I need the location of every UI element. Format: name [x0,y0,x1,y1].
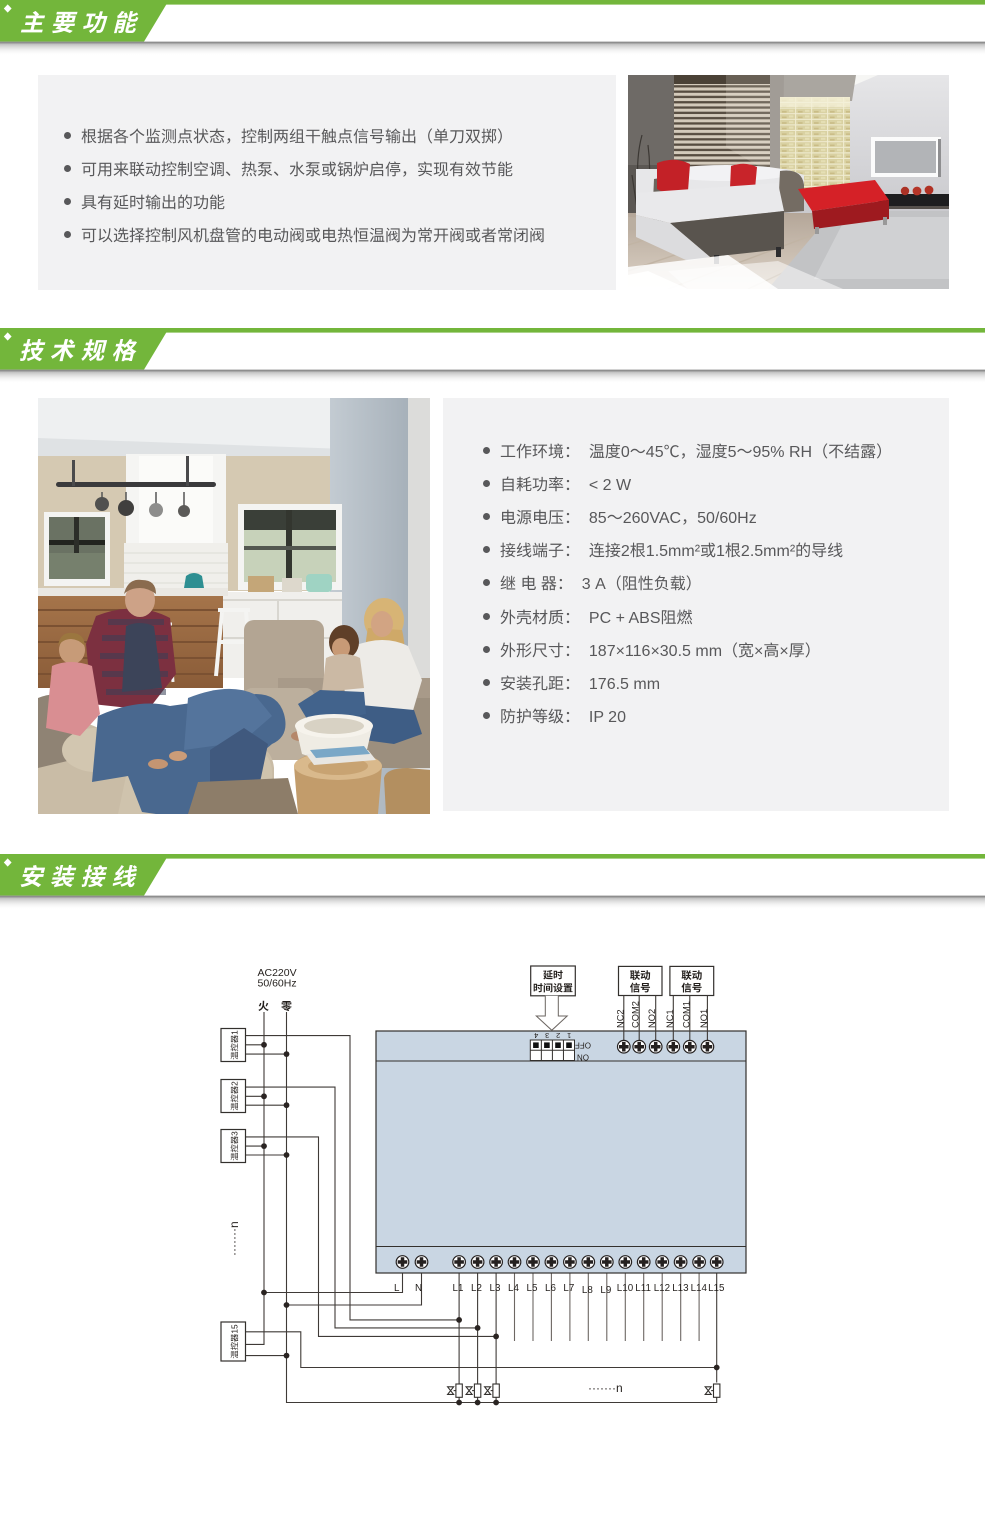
svg-text:L10: L10 [617,1283,634,1294]
svg-text:·······n: ·······n [227,1221,241,1256]
svg-text:L5: L5 [527,1283,538,1294]
svg-text:温控器3: 温控器3 [230,1131,240,1161]
svg-text:L2: L2 [471,1283,482,1294]
svg-text:·······n: ·······n [588,1381,623,1395]
svg-text:COM2: COM2 [631,1001,641,1028]
svg-text:3: 3 [545,1031,549,1040]
svg-text:L6: L6 [545,1283,556,1294]
svg-text:NO1: NO1 [699,1009,709,1028]
svg-text:L1: L1 [453,1283,464,1294]
svg-text:温控器2: 温控器2 [230,1081,240,1111]
svg-text:L13: L13 [672,1283,689,1294]
svg-text:L: L [394,1283,400,1294]
svg-text:零: 零 [281,1001,292,1013]
svg-text:L9: L9 [600,1285,611,1296]
svg-text:L15: L15 [708,1283,725,1294]
svg-text:信号: 信号 [681,983,702,995]
svg-text:COM1: COM1 [681,1001,691,1028]
svg-text:N: N [415,1283,422,1294]
svg-text:联动: 联动 [681,970,702,982]
svg-text:NC2: NC2 [615,1009,625,1028]
svg-text:1: 1 [567,1031,571,1040]
svg-text:火: 火 [258,1000,269,1013]
svg-text:L3: L3 [490,1283,501,1294]
svg-text:信号: 信号 [630,983,651,995]
svg-text:L4: L4 [508,1283,519,1294]
svg-text:2: 2 [556,1031,560,1040]
svg-text:50/60Hz: 50/60Hz [258,978,297,990]
svg-text:延时: 延时 [543,970,563,982]
svg-text:L7: L7 [563,1283,574,1294]
svg-text:ON: ON [577,1053,589,1062]
svg-text:NC1: NC1 [665,1009,675,1028]
svg-text:4: 4 [534,1031,538,1040]
svg-text:时间设置: 时间设置 [533,983,573,995]
svg-text:温控器1: 温控器1 [230,1030,240,1060]
svg-text:L12: L12 [654,1283,670,1294]
svg-text:联动: 联动 [630,970,651,982]
svg-text:OFF: OFF [575,1041,591,1050]
svg-text:温控器15: 温控器15 [230,1324,240,1359]
svg-text:NO2: NO2 [647,1009,657,1028]
svg-text:L8: L8 [582,1285,593,1296]
svg-text:L14: L14 [691,1283,708,1294]
svg-text:L11: L11 [635,1283,651,1294]
